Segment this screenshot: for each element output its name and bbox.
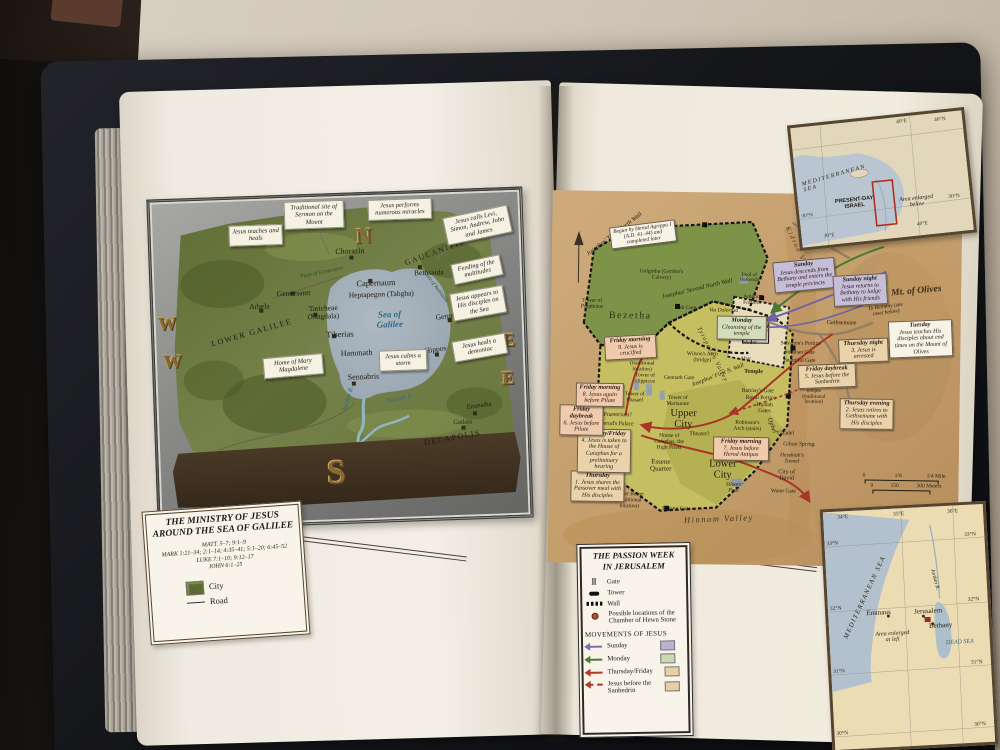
- tick-36e: 36°E: [947, 508, 958, 515]
- legend-tower-label: Tower: [607, 589, 624, 597]
- tick-30n-right: 30°N: [948, 193, 960, 200]
- event-friday-daybreak-6-day: Friday daybreak: [562, 406, 600, 420]
- tick-30n-l: 30°N: [836, 730, 848, 737]
- region-inset-map: MEDITERRANEAN SEA PRESENT-DAY ISRAEL Are…: [787, 107, 977, 251]
- passion-legend: THE PASSION WEEK IN JERUSALEM ][ Gate To…: [576, 542, 693, 738]
- open-bible-atlas-photo: N W W E E S Jesus teaches and heals Trad…: [0, 0, 1000, 750]
- callout-sermon: Traditional site of Sermon on the Mount: [283, 200, 344, 230]
- tick-30n-r: 30°N: [974, 721, 986, 728]
- tower-icon: [589, 591, 599, 595]
- legend-sunday-label: Sunday: [607, 642, 628, 650]
- event-sunday: Sunday Jesus descends from Bethany and e…: [772, 257, 837, 293]
- region-upper-city: Upper City: [661, 408, 705, 431]
- temple-label: Temple: [744, 369, 763, 376]
- event-friday-morning-8-text: 8. Jesus again before Pilate: [583, 391, 617, 404]
- gihon-spring: Gihon Spring: [783, 441, 814, 448]
- hezekiahs-tunnel: Hezekiah's Tunnel: [775, 453, 809, 465]
- inset-bethany: Bethany: [929, 622, 953, 631]
- golgotha-gordons: Golgotha (Gordon's Calvary): [639, 269, 683, 281]
- tick-33n-l: 33°N: [826, 541, 838, 548]
- tower-hippicus: Tower of Hippicus: [630, 373, 660, 385]
- legend-wall-label: Wall: [607, 600, 620, 608]
- place-tiberias: Tiberias: [326, 330, 354, 340]
- tower-phasael: Tower of Phasael: [620, 392, 650, 404]
- water-gate: Water Gate: [770, 489, 796, 495]
- essene-quarter: Essene Quarter: [643, 458, 679, 473]
- event-thursday-text: 1. Jesus shares the Passover meal with H…: [574, 479, 621, 499]
- event-friday-daybreak-5-text: 5. Jesus before the Sanhedrin: [805, 372, 850, 386]
- tick-30e-bottom: 30°E: [823, 232, 835, 239]
- galilee-map-plate: N W W E E S Jesus teaches and heals Trad…: [146, 187, 533, 531]
- place-arbela: Arbela: [249, 302, 270, 311]
- essene-gate: Essene Gate: [662, 506, 691, 512]
- callout-teaches: Jesus teaches and heals: [228, 224, 283, 246]
- passion-legend-title-2: IN JERUSALEM: [578, 560, 690, 573]
- sunday-arrow-icon: [587, 645, 602, 647]
- scale-mi-quarter: 1/4 Mile: [927, 473, 946, 479]
- sanhedrin-swatch: [665, 681, 680, 691]
- tick-31n-l: 31°N: [833, 668, 845, 675]
- place-taricheae: Taricheae (Magdala): [299, 304, 348, 322]
- tick-40e-top: 40°E: [896, 118, 908, 125]
- legend-road-label: Road: [210, 596, 229, 607]
- praetorium: Praetorium?: [603, 412, 631, 418]
- tick-40e-bottom: 40°E: [917, 220, 929, 227]
- monday-swatch: [660, 653, 675, 663]
- tick-31n-r: 31°N: [971, 659, 983, 666]
- legend-chamber-label: Possible locations of the Chamber of Hew…: [608, 609, 682, 625]
- city-of-david: City of David: [773, 469, 801, 482]
- place-sennabris: Sennabris: [348, 373, 380, 383]
- event-thursday-night-text: 3. Jesus is arrested: [851, 347, 876, 360]
- event-thursday-evening: Thursday evening 2. Jesus retires to Get…: [839, 398, 893, 429]
- event-sunday-text: Jesus descends from Bethany and enters t…: [777, 266, 832, 289]
- huldah-gates: Huldah Gates: [752, 403, 778, 415]
- event-friday-daybreak-5: Friday daybreak 5. Jesus before the Sanh…: [798, 363, 857, 389]
- compass-s: S: [326, 454, 346, 493]
- event-sunday-night: Sunday night Jesus returns to Bethany to…: [832, 273, 888, 307]
- legend-gate-label: Gate: [607, 578, 620, 586]
- monday-arrow-icon: [587, 658, 602, 660]
- galilee-legend: THE MINISTRY OF JESUS AROUND THE SEA OF …: [142, 501, 311, 646]
- compass-n: N: [355, 223, 372, 250]
- callout-miracles: Jesus performs numerous miracles: [367, 198, 432, 221]
- thursday-friday-swatch: [664, 666, 679, 676]
- scale-bar: 0 1/8 1/4 Mile 0 150 300 Meters: [864, 473, 956, 496]
- sanhedrin-arrow-icon: [588, 683, 603, 685]
- place-gadara: Gadara: [453, 419, 472, 427]
- thursday-friday-arrow-icon: [588, 671, 603, 673]
- wilsons-arch: Wilson's Arch (bridge): [686, 352, 718, 364]
- solomons-portico: Solomon's Portico: [780, 341, 820, 347]
- callout-storm: Jesus calms a storm: [379, 349, 428, 371]
- scale-mi-eighth: 1/8: [895, 473, 902, 479]
- event-monday-text: Cleansing of the temple: [722, 324, 761, 337]
- legend-thursday-friday-label: Thursday/Friday: [607, 668, 652, 676]
- scale-mi-0: 0: [863, 473, 866, 479]
- event-thursday-evening-text: 2. Jesus retires to Gethsemane with His …: [846, 407, 888, 427]
- road-symbol-icon: [187, 601, 205, 603]
- event-thursday-friday-text: 4. Jesus is taken to the House of Caiaph…: [582, 437, 627, 470]
- place-gennesaret: Gennesaret: [277, 289, 311, 298]
- area-enlarged-at-left: Area enlarged at left: [873, 630, 912, 645]
- siloam-pool: Siloam Pool: [720, 483, 746, 495]
- event-sunday-night-text: Jesus returns to Bethany to lodge with H…: [840, 282, 881, 303]
- legend-monday-label: Monday: [607, 655, 630, 663]
- altar-label: Altar: [740, 357, 751, 363]
- event-tuesday: Tuesday Jesus teaches His disciples abou…: [888, 319, 953, 359]
- event-thursday: Thursday 1. Jesus shares the Passover me…: [570, 470, 624, 501]
- event-friday-morning-9: Friday morning 9. Jesus is crucified: [604, 334, 657, 361]
- event-friday-morning-8: Friday morning 8. Jesus again before Pil…: [576, 383, 624, 408]
- tick-40n-top: 40°N: [934, 116, 946, 123]
- tick-30n-left: 30°N: [801, 212, 813, 219]
- wall-icon: [586, 602, 602, 606]
- event-friday-morning-7: Friday morning 7. Jesus before Herod Ant…: [713, 436, 769, 461]
- tick-34e: 34°E: [837, 514, 848, 521]
- event-friday-daybreak-6: Friday daybreak 6. Jesus before Pilate: [559, 404, 603, 435]
- legend-sanhedrin-label: Jesus before the Sanhedrin: [608, 679, 660, 695]
- chamber-location-icon: [592, 613, 599, 620]
- event-thursday-night: Thursday night 3. Jesus is arrested: [838, 338, 889, 364]
- event-friday-daybreak-6-text: 6. Jesus before Pilate: [564, 420, 600, 433]
- region-bezetha: Bezetha: [609, 311, 652, 322]
- tower-mariamne: Tower of Mariamne: [662, 396, 694, 408]
- pool-of-bethesda: Pool of Bethesda: [733, 273, 765, 284]
- theater: Theater?: [689, 431, 709, 437]
- city-symbol-icon: [186, 580, 205, 595]
- movements-heading: MOVEMENTS OF JESUS: [585, 629, 685, 639]
- place-capernaum: Capernaum: [356, 278, 395, 288]
- place-hammath: Hammath: [341, 349, 373, 359]
- shushan-gate: Shushan Gate: [784, 350, 814, 356]
- passion-legend-title-1: THE PASSION WEEK: [577, 549, 689, 562]
- tick-35e: 35°E: [893, 511, 904, 518]
- gate-icon: ][: [586, 578, 602, 587]
- event-friday-morning-7-text: 7. Jesus before Herod Antipas: [723, 445, 759, 458]
- scale-m-150: 150: [890, 483, 898, 489]
- compass-e2: E: [501, 368, 514, 390]
- event-friday-morning-9-text: 9. Jesus is crucified: [618, 343, 643, 357]
- gennath-gate: Gennath Gate: [664, 376, 694, 382]
- legend-city-label: City: [209, 581, 224, 591]
- fish-gate: Fish Gate: [675, 306, 696, 312]
- gethsemane: Gethsemane: [827, 320, 857, 327]
- tower-psephinus: Tower of Psephinus: [577, 299, 607, 311]
- compass-w2: W: [163, 352, 183, 375]
- israel-inset-map: MEDITERRANEAN SEA Emmaus Jerusalem Betha…: [820, 501, 999, 750]
- robinsons-arch: Robinson's Arch (stairs): [731, 421, 763, 433]
- event-monday: Monday Cleansing of the temple: [717, 315, 767, 340]
- scale-m-300: 300 Meters: [916, 483, 941, 489]
- house-of-caiaphas: House of Caiaphas, the High Priest: [649, 434, 689, 452]
- antonia-fortress: Antonia Fortress: [737, 295, 767, 307]
- sea-of-galilee: Sea of Galilee: [367, 309, 412, 330]
- compass-w: W: [157, 314, 177, 337]
- citadel: Citadel: [777, 430, 794, 436]
- tick-33n-r: 33°N: [964, 531, 976, 538]
- tick-32n-r: 32°N: [968, 596, 980, 603]
- region-lower-city: Lower City: [703, 458, 743, 481]
- via-dolorosa: Via Dolorosa: [709, 308, 738, 314]
- sunday-swatch: [660, 640, 675, 650]
- scale-m-0: 0: [870, 483, 873, 489]
- herods-palace: Herod's Palace: [599, 421, 633, 428]
- inset-emmaus: Emmaus: [866, 609, 891, 618]
- inset-jerusalem: Jerusalem: [914, 607, 942, 616]
- tick-32n-l: 32°N: [830, 606, 842, 613]
- event-tuesday-text: Jesus teaches His disciples about end ti…: [895, 328, 948, 355]
